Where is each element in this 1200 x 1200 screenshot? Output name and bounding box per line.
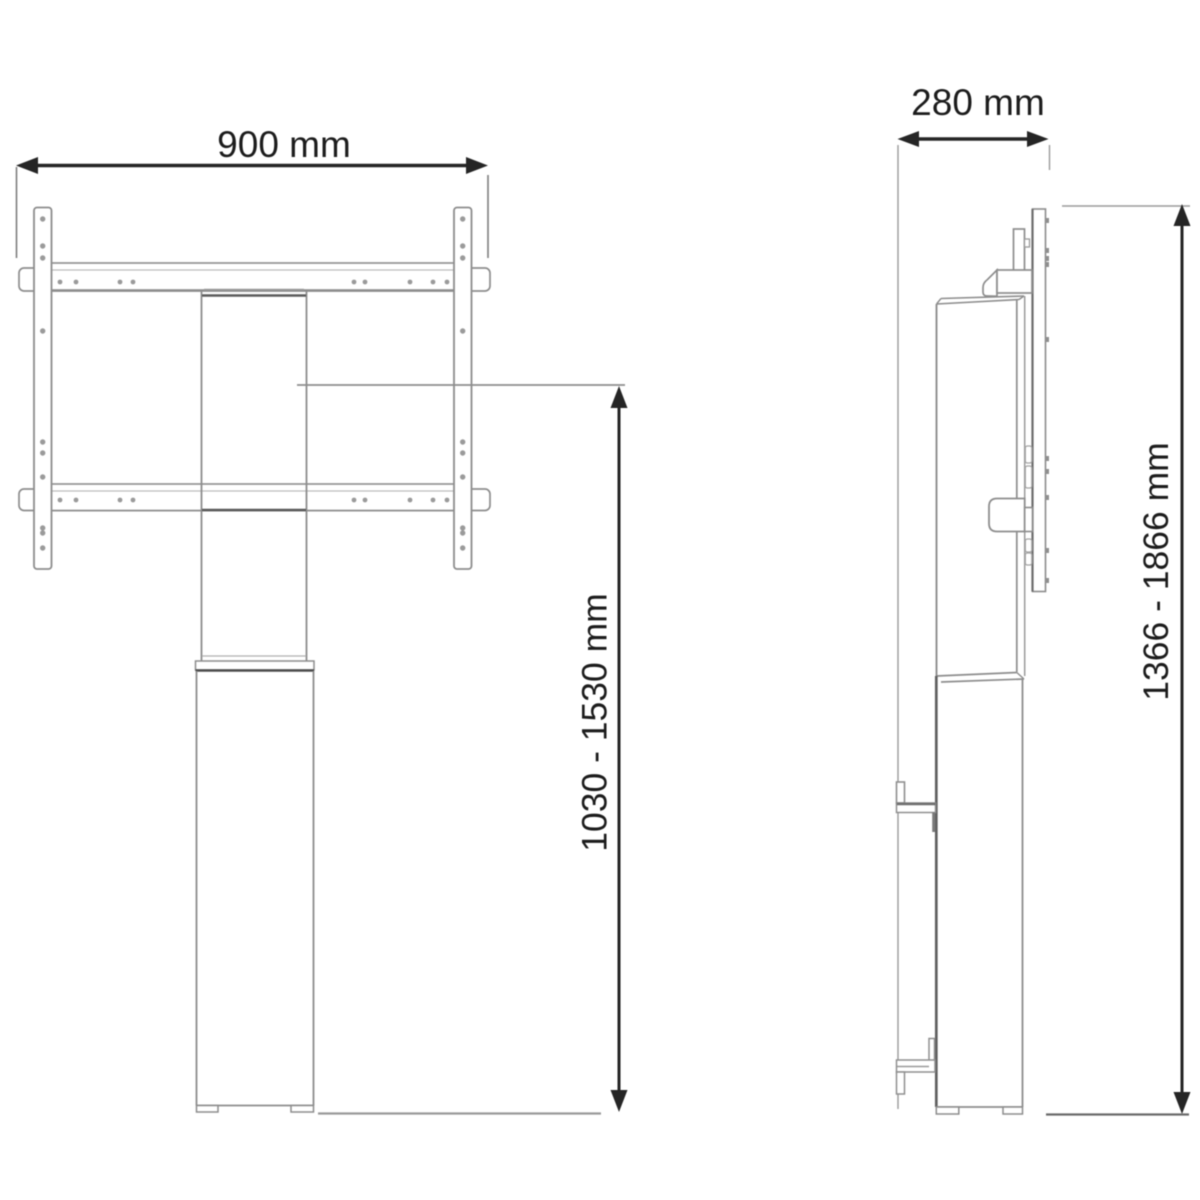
- svg-text:900 mm: 900 mm: [217, 124, 351, 165]
- svg-text:1030 - 1530 mm: 1030 - 1530 mm: [575, 593, 615, 852]
- svg-text:1366 - 1866 mm: 1366 - 1866 mm: [1136, 442, 1176, 701]
- svg-text:280 mm: 280 mm: [911, 82, 1045, 123]
